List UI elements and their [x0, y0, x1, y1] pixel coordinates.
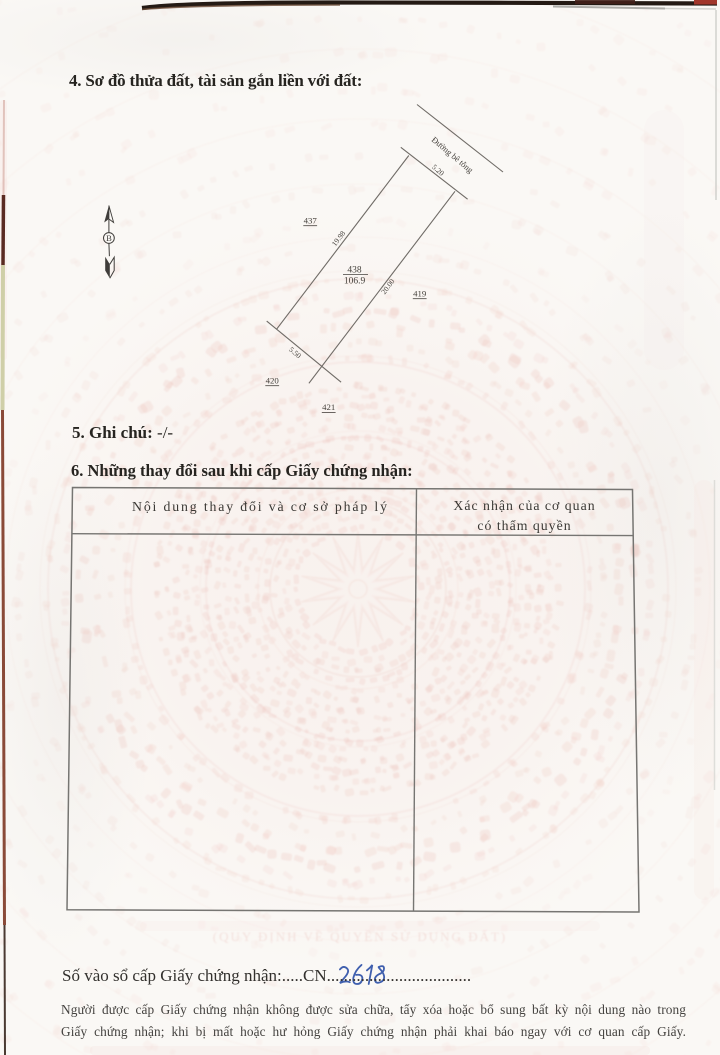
svg-text:421: 421	[322, 402, 335, 412]
svg-text:437: 437	[304, 216, 318, 226]
svg-text:438: 438	[347, 266, 362, 276]
svg-text:19.98: 19.98	[330, 229, 347, 248]
svg-text:419: 419	[413, 289, 427, 299]
svg-text:5.50: 5.50	[287, 345, 303, 360]
svg-text:20.00: 20.00	[379, 277, 396, 296]
svg-text:106.9: 106.9	[344, 277, 366, 287]
svg-text:5.20: 5.20	[430, 162, 446, 177]
svg-text:420: 420	[266, 376, 280, 386]
svg-text:B: B	[106, 233, 112, 243]
